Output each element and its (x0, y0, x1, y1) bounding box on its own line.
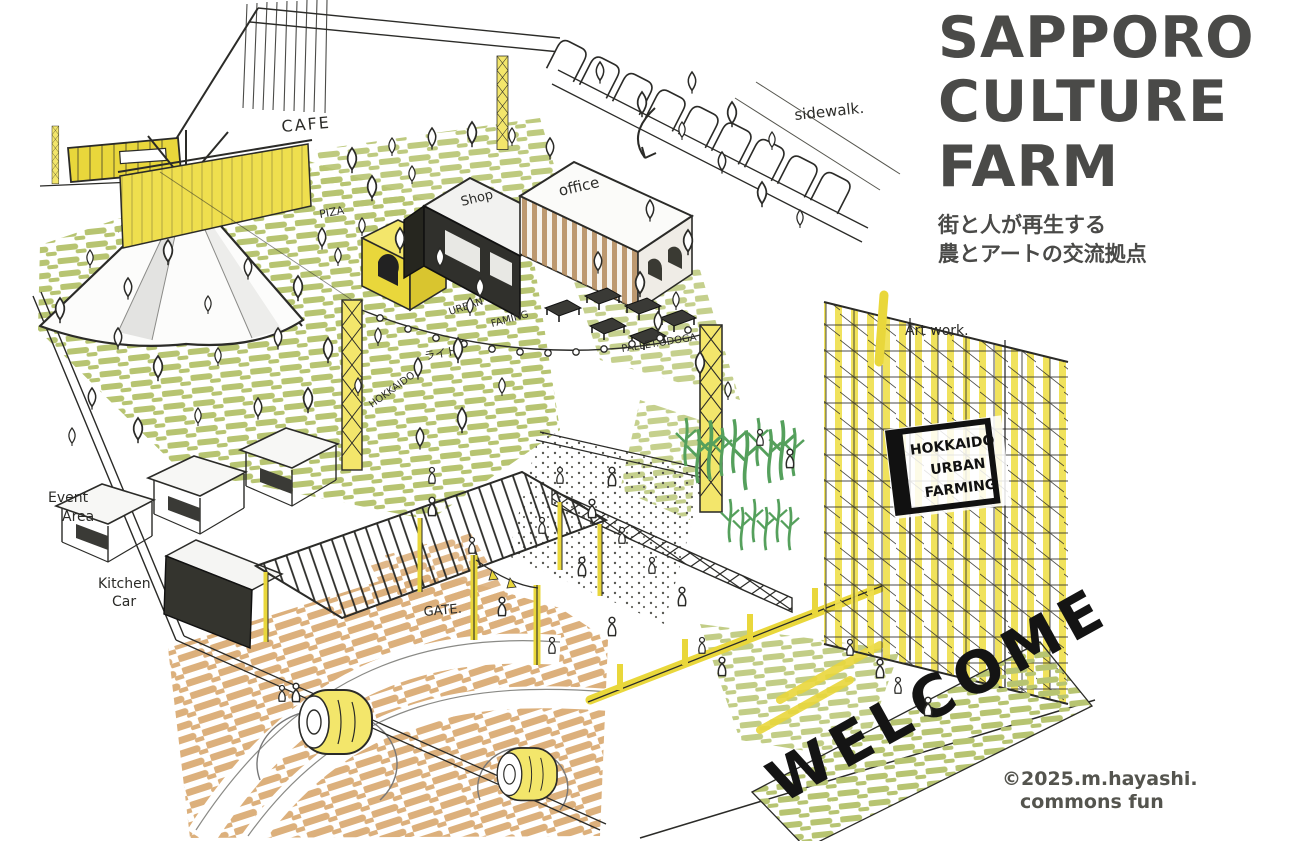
person-icon (757, 429, 763, 445)
tree-icon (134, 418, 143, 443)
person-icon (876, 659, 883, 677)
person-icon (847, 639, 853, 655)
kitchen-car-label-1: Kitchen (98, 576, 151, 592)
tree-icon (718, 152, 725, 174)
light-bulb-icon (433, 335, 439, 341)
event-area-label-2: Area (62, 509, 94, 525)
title-line-1: SAPPORO (938, 6, 1288, 70)
person-icon (649, 557, 655, 573)
light-bulb-icon (517, 349, 523, 355)
title-line-3: FARM (938, 135, 1288, 199)
person-icon (557, 467, 563, 483)
tree-icon (725, 382, 731, 400)
credit-line-2: commons fun (1002, 791, 1198, 814)
kitchen-car-label-2: Car (112, 594, 136, 610)
person-icon (539, 517, 545, 533)
office-container: office (520, 162, 692, 310)
tree-icon (679, 122, 685, 140)
tree-icon (69, 428, 75, 446)
tree-icon (88, 388, 95, 410)
corn-plant-icon (721, 499, 739, 542)
light-bulb-icon (629, 341, 635, 347)
subtitle-line-1: 街と人が再生する (938, 211, 1288, 239)
tree-icon (688, 72, 695, 94)
person-icon (292, 683, 299, 701)
person-icon (786, 449, 793, 467)
person-icon (608, 617, 615, 635)
light-bulb-icon (405, 326, 411, 332)
person-icon (279, 685, 285, 701)
person-icon (549, 637, 555, 653)
person-icon (428, 497, 435, 515)
light-bulb-icon (657, 335, 663, 341)
subtitle-line-2: 農とアートの交流拠点 (938, 240, 1288, 268)
sidewalk-label: sidewalk. (794, 99, 865, 124)
light-bulb-icon (685, 327, 691, 333)
person-icon (699, 637, 705, 653)
person-icon (924, 697, 931, 715)
cafe-label: CAFE (281, 113, 332, 136)
scaffold-sign: HOKKAIDO URBAN FARMING (884, 415, 1012, 519)
light-bulb-icon (377, 315, 383, 321)
facade-arch-icon (745, 137, 787, 181)
person-icon (578, 557, 585, 575)
person-icon (469, 537, 475, 553)
credit: ©2025.m.hayashi. commons fun (1002, 768, 1198, 814)
light-bulb-icon (545, 350, 551, 356)
title-line-2: CULTURE (938, 70, 1288, 134)
tree-icon (758, 182, 767, 207)
person-icon (678, 587, 685, 605)
person-icon (429, 467, 435, 483)
title-block: SAPPORO CULTURE FARM 街と人が再生する 農とアートの交流拠点 (938, 6, 1288, 268)
light-bulb-icon (573, 349, 579, 355)
person-icon (498, 597, 505, 615)
light-bulb-icon (601, 346, 607, 352)
illustration-canvas: sidewalk. (0, 0, 1297, 841)
art-work-label: Art work. (905, 323, 969, 339)
person-icon (718, 657, 725, 675)
person-icon (619, 527, 625, 543)
person-icon (608, 467, 615, 485)
light-bulb-icon (489, 346, 495, 352)
event-area-label-1: Event (48, 490, 89, 506)
person-icon (895, 677, 901, 693)
facade-arch-icon (811, 170, 853, 214)
person-icon (588, 499, 595, 517)
credit-line-1: ©2025.m.hayashi. (1002, 768, 1198, 791)
facade-arch-icon (778, 154, 820, 198)
tree-icon (797, 210, 803, 228)
